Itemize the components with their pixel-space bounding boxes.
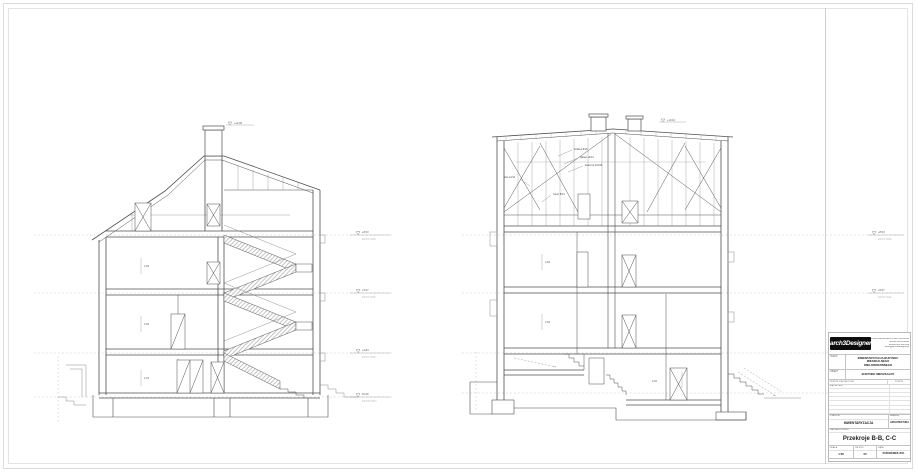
attic-braces-cc [504,134,721,215]
field-obiekt-label: OBIEKT [829,370,846,379]
room-height-label: 2,84 [545,260,551,264]
field-obiekt: OBIEKT BUDYNEK MIESZKALNY [829,370,910,380]
svg-text:+8,53: +8,53 [362,230,369,234]
field-temat-label: TEMAT [829,355,846,369]
drawing-sheet: +12,96 [0,0,916,472]
titleblock-spacer [829,459,910,461]
svg-text:poziom stropu: poziom stropu [362,238,377,241]
wall-ledges-cc [490,232,734,322]
room-height-label: 2,60 [652,379,658,383]
roof-member-label: kleszcze 2×8/16 [585,164,603,167]
staircase-bb [224,225,312,398]
field-obiekt-value: BUDYNEK MIESZKALNY [846,370,910,379]
chimney-level-label: +13,10 [667,118,676,122]
chimney-bb [203,126,224,156]
svg-text:+5,67: +5,67 [362,288,369,292]
field-temat: TEMAT INWENTARYZACJA BUDYNKU MIESZKALNEG… [829,355,910,370]
date-value: PAŹDZIERNIK 2011 [877,451,910,458]
field-temat-value-line2: WIELORODZINNEGO [864,364,892,367]
team-header-right: PODPIS [888,380,910,384]
svg-text:poziom parteru: poziom parteru [362,400,377,403]
drawing-title-row: NAZWA RYSUNKU Przekroje B-B, C-C [829,429,910,447]
scale-value: 1:50 [829,451,853,458]
room-height-label: 2,84 [545,320,551,324]
room-height-label: 2,84 [144,322,150,326]
cornice-ticks-cc [506,130,716,141]
roof-member-label: płatew 14/14 [580,156,594,159]
branza-value: ARCHITEKTURA [889,420,910,428]
step-arrows-cc [514,358,782,396]
company-logo: arch3Designer [830,337,871,350]
chimney-level-marker-cc: +13,10 [659,118,686,122]
stadium-branza-row: STADIUM INWENTARYZACJA BRANŻA ARCHITEKTU… [829,415,910,429]
svg-text:poziom stropu: poziom stropu [878,296,893,299]
room-height-label: 2,84 [144,264,150,268]
ridge-level-label: +12,96 [234,121,243,125]
svg-text:+2,84: +2,84 [362,348,369,352]
office-contact-lines: PRACOWNIA ARCHITEKTONICZNA 50-000 WROCŁA… [871,338,910,349]
section-drawing-bb: +12,96 [28,116,400,430]
ridge-level-marker-bb: +12,96 [226,121,254,125]
roof-cc [492,129,733,141]
svg-text:poziom stropu: poziom stropu [362,356,377,359]
chimneys-cc [589,114,643,131]
scale-number-date-row: SKALA 1:50 NR RYS. 05 DATA PAŹDZIERNIK 2… [829,446,910,459]
svg-text:±0,00: ±0,00 [362,392,369,396]
titleblock-logo-row: arch3Designer PRACOWNIA ARCHITEKTONICZNA… [829,333,910,355]
team-table: ZESPÓŁ PROJEKTOWY PODPIS mgr inż. arch. [829,380,910,415]
team-header-left: ZESPÓŁ PROJEKTOWY [829,380,888,384]
foundation-cc [470,382,746,420]
roof-member-label: słup 14/14 [504,176,516,179]
drawing-title: Przekroje B-B, C-C [829,433,910,445]
stadium-value: INWENTARYZACJA [829,420,888,428]
svg-text:poziom stropu: poziom stropu [362,296,377,299]
openings-bb [135,203,224,393]
drawing-number-value: 05 [854,451,876,458]
room-height-labels-cc: 2,84 2,84 2,60 [542,254,682,388]
svg-text:+5,67: +5,67 [878,288,885,292]
roof-member-label: miecz 8/14 [553,193,565,196]
floor-slabs-cc [504,226,721,405]
title-block: arch3Designer PRACOWNIA ARCHITEKTONICZNA… [828,332,911,462]
team-row [829,410,910,414]
roof-bb [92,156,320,242]
room-height-labels-bb: 2,84 2,84 2,62 [141,258,150,386]
room-height-label: 2,62 [144,376,150,380]
level-markers-bb: +8,53 poziom stropu +5,67 poziom stropu … [350,230,390,403]
roof-member-label: krokiew 8/16 [574,148,588,151]
svg-text:+8,53: +8,53 [878,230,885,234]
svg-text:poziom stropu: poziom stropu [878,238,893,241]
openings-cc [577,194,687,400]
floor-slabs-bb [99,231,320,398]
